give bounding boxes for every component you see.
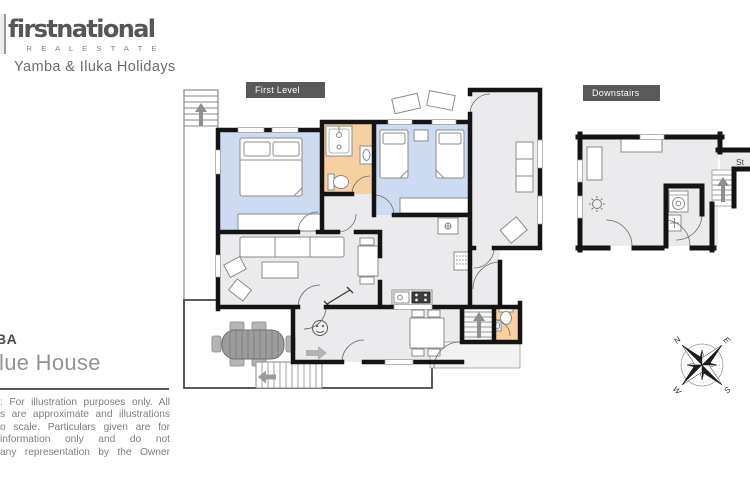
brand-logo-subtext: R E A L E S T A T E	[8, 44, 160, 53]
compass-west: W	[671, 384, 684, 397]
bedside-table	[414, 130, 428, 141]
corridor-floor	[470, 248, 500, 307]
vanity-sink	[360, 146, 373, 164]
compass-south: S	[722, 385, 733, 396]
cropped-room-label: St	[736, 157, 745, 167]
downstairs-stairs	[712, 170, 734, 206]
bbq-icon	[313, 321, 328, 336]
built-in-bench	[238, 214, 322, 231]
disclaimer-line: information only and do not	[0, 434, 170, 446]
divider-rule	[0, 388, 169, 390]
compass-east: E	[722, 335, 733, 346]
brand-logo-text: firstnational	[8, 16, 162, 42]
property-title-fragment: BA	[0, 331, 17, 347]
dining-table-small	[358, 246, 378, 276]
wardrobe	[400, 198, 470, 213]
disclaimer-line: any representation by the Owner	[0, 447, 170, 459]
property-name-fragment: lue House	[0, 350, 101, 376]
sofa	[240, 237, 344, 257]
compass-north: N	[672, 335, 683, 346]
bench-counter	[587, 147, 602, 180]
disclaimer-text: : For illustration purposes only. All s …	[0, 397, 170, 459]
deck-stairs	[256, 362, 322, 388]
coffee-table	[262, 262, 298, 278]
disclaimer-line: s are approximate and illustrations	[0, 409, 170, 421]
outdoor-items-top	[392, 91, 455, 114]
cooktop-icon	[412, 292, 430, 303]
outdoor-table	[222, 330, 284, 359]
brand-mark-bar	[0, 14, 6, 54]
first-level-floorplan	[180, 85, 565, 395]
compass-rose: N E S W	[664, 327, 740, 403]
floorplan-page: firstnational R E A L E S T A T E Yamba …	[0, 0, 750, 500]
hallway-floor	[322, 194, 374, 232]
brand-tagline: Yamba & Iluka Holidays	[14, 59, 176, 75]
dining-table	[410, 318, 444, 348]
master-bed	[240, 138, 302, 196]
downstairs-label: Downstairs	[583, 85, 660, 101]
downstairs-floorplan: St	[575, 128, 750, 255]
internal-stairs	[464, 307, 494, 342]
shelf	[621, 139, 662, 152]
disclaimer-line: o scale. Particulars given are for	[0, 422, 170, 434]
disclaimer-line: : For illustration purposes only. All	[0, 397, 170, 409]
fridge	[454, 252, 470, 270]
shelf-unit	[516, 142, 533, 192]
